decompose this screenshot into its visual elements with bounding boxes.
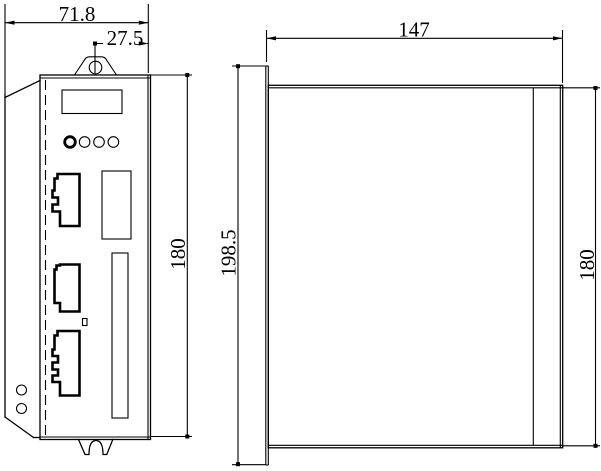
dim-label-hole-offset: 27.5 [107,26,144,50]
square-marker-left [93,42,97,46]
connector-middle [55,265,80,312]
square-marker-bottom [185,435,189,439]
square-marker-top [185,73,189,77]
led-row [65,137,119,148]
led-4 [108,137,119,148]
dim-front-height: 180 [151,73,193,439]
front-view [5,57,151,455]
dim-label-overall-height: 198.5 [217,229,241,276]
body-outline [40,75,151,440]
dim-side-depth: 147 [267,18,563,84]
dim-label-side-body-height: 180 [575,249,599,281]
square-marker-top [236,64,240,68]
led-2 [79,137,90,148]
square-marker-top [594,86,598,90]
dimension-drawing: 71.8 27.5 180 [0,0,601,471]
flange-hole-lower [17,404,27,414]
dim-label-front-height: 180 [166,238,190,270]
square-marker-bottom [594,444,598,448]
dim-label-side-depth: 147 [398,18,430,42]
small-indicator-square [83,319,88,326]
connector-bottom [53,331,80,396]
dim-side-overall-height: 198.5 [217,64,266,466]
arrow-right [553,36,563,40]
display-window [62,90,122,114]
flange-top-slant [5,81,40,98]
bottom-mounting-tab [79,440,113,455]
arrow-right [139,21,149,25]
side-body-outline [268,85,562,448]
connector-top [53,174,80,226]
dim-side-body-height: 180 [563,86,600,448]
front-body [40,75,151,440]
dim-label-front-width: 71.8 [59,2,96,26]
led-1 [65,137,76,148]
arrow-left [5,21,15,25]
slot-panel-tall [112,253,128,418]
flange-bottom-slant [5,417,34,438]
arrow-left [267,36,277,40]
flange-hole-upper [17,385,27,395]
side-view [266,66,563,465]
connector-panel-upper [102,171,131,239]
square-marker-bottom [236,462,240,466]
side-flange [5,81,40,438]
side-body [268,85,562,448]
led-3 [94,137,105,148]
technical-drawing-canvas: 71.8 27.5 180 [0,0,601,471]
